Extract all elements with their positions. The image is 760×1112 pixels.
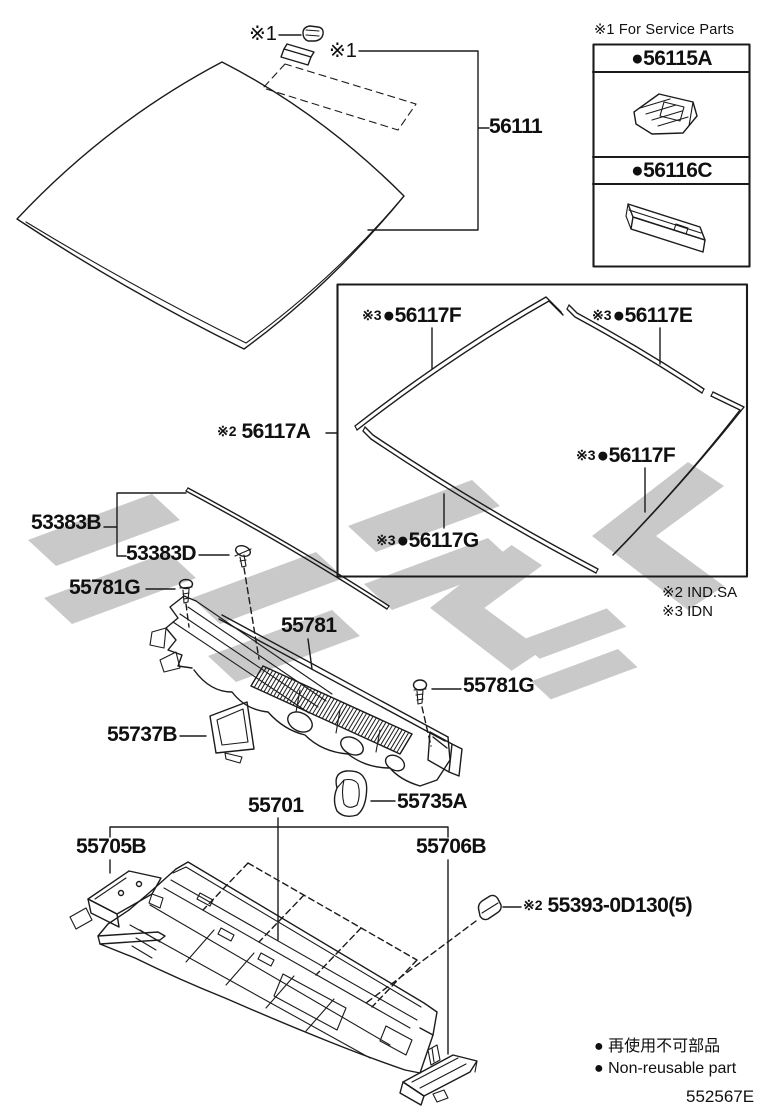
part-label-55737b: 55737B [107, 724, 177, 745]
part-label-56117f-right: ※3●56117F [576, 445, 675, 466]
part-label-56117a: ※256117A [217, 421, 310, 442]
part-label-56117f-upper: ※3●56117F [362, 305, 461, 326]
note-prefix: ※3 [592, 307, 612, 323]
duct-55735a-drawing [335, 771, 367, 816]
note-prefix: ※2 [217, 423, 237, 439]
note-prefix: ※3 [362, 307, 382, 323]
service-parts-header: ※1 For Service Parts [594, 23, 734, 38]
legend-nonreusable-jp: ● 再使用不可部品 [594, 1039, 720, 1055]
cover-note-label: ※1 [329, 41, 357, 61]
part-label-55701: 55701 [248, 795, 303, 816]
part-label-55781g-right: 55781G [463, 675, 534, 696]
part-label-55735a: 55735A [397, 791, 467, 812]
spacer-56116c-drawing [626, 204, 705, 252]
note-ind-sa: ※2 IND.SA [662, 585, 737, 600]
part-label-56117e: ※3●56117E [592, 305, 692, 326]
part-label-56111: 56111 [489, 116, 542, 137]
windshield-glass-drawing [17, 62, 416, 349]
bracket-55706b-drawing [400, 1045, 477, 1105]
parts-diagram-canvas: ※1 ※1 56111 ※1 For Service Parts ●56115A… [0, 0, 760, 1112]
stopper-56115a-drawing [634, 94, 697, 134]
part-label-56115a: ●56115A [593, 47, 750, 71]
service-parts-box-frame [593, 45, 750, 267]
part-label-56116c: ●56116C [593, 159, 750, 183]
bracket-55737b-drawing [210, 702, 254, 763]
note-prefix: ※3 [376, 532, 396, 548]
note-prefix: ※2 [523, 897, 543, 913]
clip-note-label: ※1 [249, 24, 277, 44]
part-label-55781: 55781 [281, 615, 336, 636]
note-prefix: ※3 [576, 447, 596, 463]
seal-clip-53383d-drawing [234, 544, 251, 567]
dash-panel-55701-drawing [98, 862, 437, 1073]
part-label-56117g: ※3●56117G [376, 530, 479, 551]
screw-55781g-right-drawing [414, 680, 427, 704]
legend-nonreusable-en: ● Non-reusable part [594, 1061, 736, 1077]
part-label-53383b: 53383B [31, 512, 101, 533]
figure-code: 552567E [686, 1088, 754, 1105]
part-label-55705b: 55705B [76, 836, 146, 857]
note-idn: ※3 IDN [662, 604, 713, 619]
mirror-bracket-clip-drawing [303, 26, 323, 41]
part-label-55781g-left: 55781G [69, 577, 140, 598]
part-label-55706b: 55706B [416, 836, 486, 857]
part-label-55393: ※255393-0D130(5) [523, 895, 692, 916]
part-label-53383d: 53383D [126, 543, 196, 564]
bracket-55705b-drawing [70, 871, 163, 929]
mirror-bracket-cover-drawing [281, 44, 314, 65]
clip-55393-drawing [478, 895, 501, 919]
